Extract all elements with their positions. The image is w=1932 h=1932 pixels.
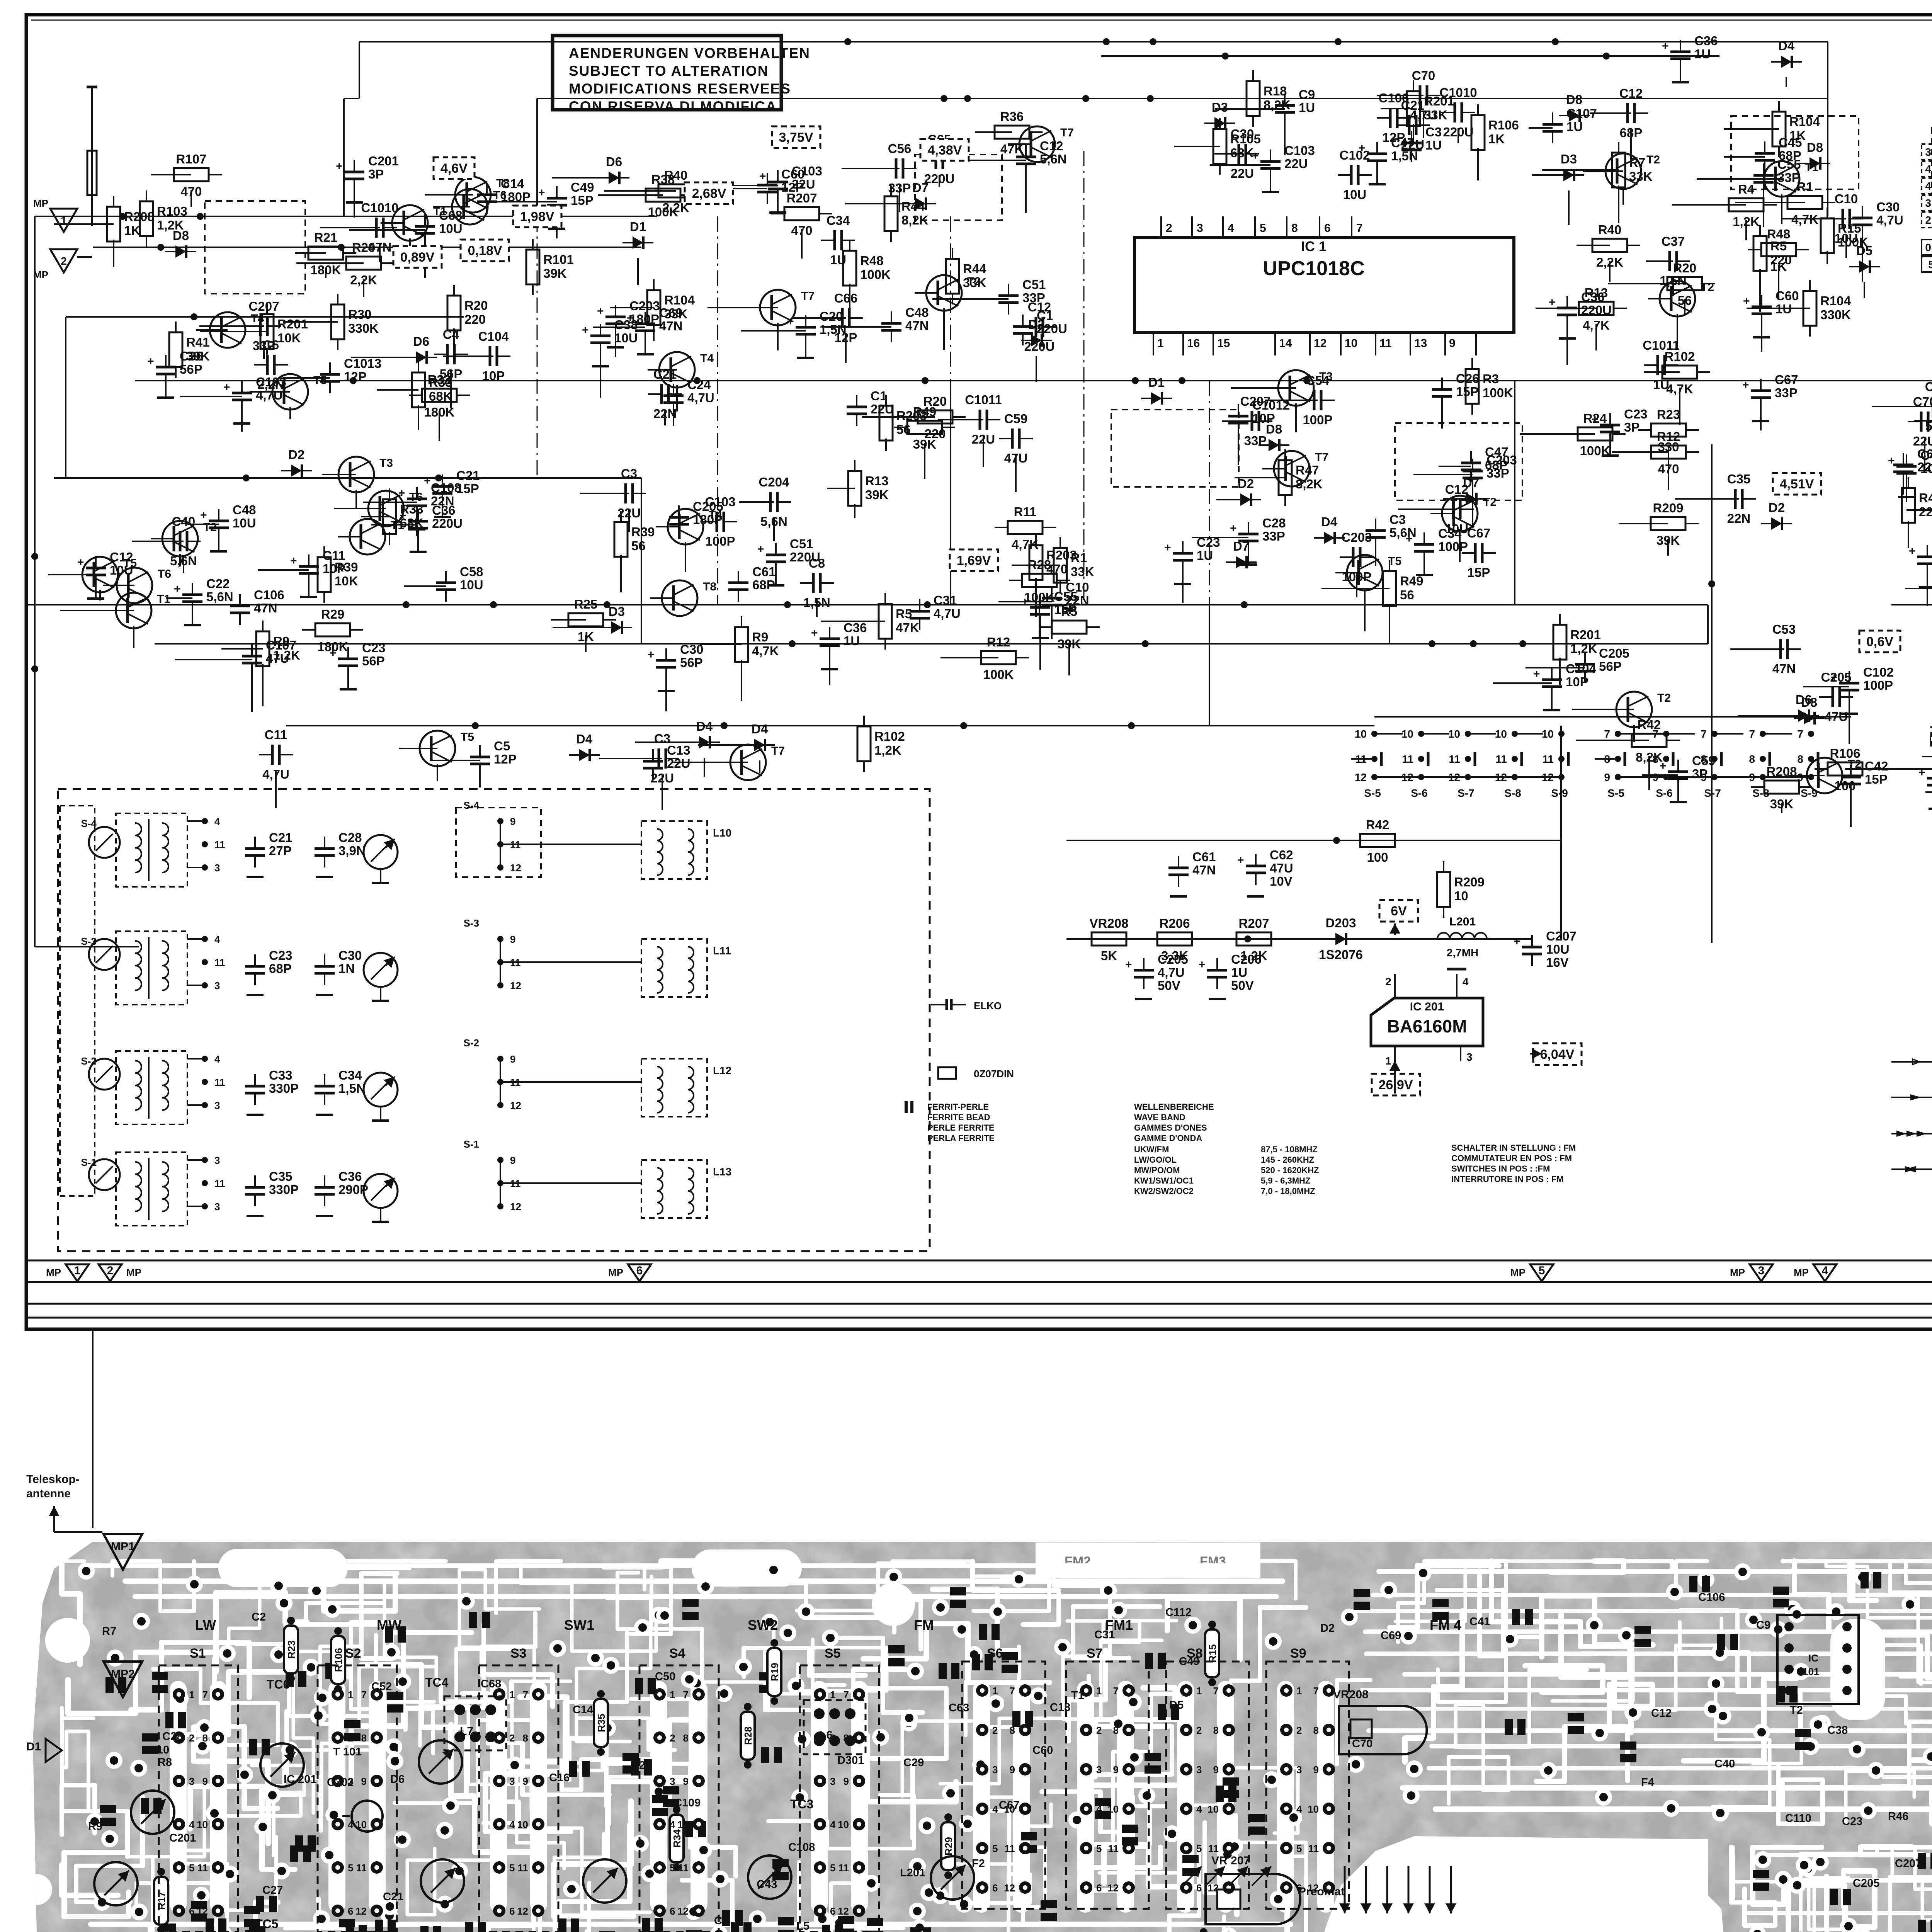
- svg-text:C8: C8: [809, 556, 825, 570]
- svg-text:+: +: [200, 509, 207, 522]
- svg-text:R46: R46: [1888, 1810, 1908, 1823]
- svg-text:FM 4: FM 4: [1430, 1617, 1461, 1633]
- svg-text:C21: C21: [383, 1891, 403, 1903]
- svg-text:1: 1: [189, 1689, 194, 1701]
- svg-text:4,7K: 4,7K: [1791, 212, 1818, 226]
- svg-text:11: 11: [838, 1862, 849, 1874]
- svg-text:L10: L10: [713, 827, 731, 839]
- svg-text:1,69V: 1,69V: [957, 553, 991, 568]
- svg-text:R105: R105: [1230, 132, 1261, 146]
- svg-text:R102: R102: [874, 729, 905, 743]
- svg-text:7: 7: [1010, 1685, 1015, 1697]
- svg-text:R42: R42: [1638, 718, 1661, 732]
- svg-text:7,0 - 18,0MHZ: 7,0 - 18,0MHZ: [1261, 1186, 1315, 1196]
- svg-text:1U: 1U: [1299, 100, 1315, 115]
- svg-text:C69: C69: [1381, 1629, 1401, 1642]
- svg-text:220: 220: [464, 312, 486, 327]
- svg-text:180P: 180P: [693, 512, 723, 527]
- svg-text:T5: T5: [461, 731, 474, 743]
- svg-text:1U: 1U: [1231, 965, 1247, 980]
- svg-text:D6: D6: [390, 1773, 405, 1786]
- svg-text:MP: MP: [46, 1267, 61, 1278]
- svg-text:12: 12: [510, 1201, 521, 1213]
- svg-text:T1: T1: [1805, 161, 1818, 174]
- svg-text:C16: C16: [549, 1772, 570, 1784]
- svg-text:2: 2: [670, 1732, 675, 1744]
- svg-text:+: +: [1230, 522, 1237, 535]
- svg-text:MP2: MP2: [111, 1668, 135, 1680]
- svg-text:100P: 100P: [1863, 678, 1893, 692]
- svg-text:C6: C6: [714, 1915, 728, 1927]
- svg-text:10U: 10U: [614, 331, 638, 345]
- svg-text:1U: 1U: [1653, 378, 1669, 392]
- svg-text:8: 8: [683, 1732, 689, 1744]
- svg-text:10K: 10K: [335, 574, 358, 588]
- svg-text:C106: C106: [254, 588, 284, 602]
- svg-text:+: +: [1918, 766, 1925, 779]
- svg-text:C1012: C1012: [1252, 398, 1290, 412]
- svg-text:T5: T5: [123, 557, 137, 570]
- svg-text:C108: C108: [788, 1841, 815, 1854]
- svg-text:33P: 33P: [1486, 466, 1509, 480]
- svg-text:10: 10: [1495, 728, 1507, 740]
- svg-text:C1011: C1011: [965, 393, 1002, 407]
- svg-text:F4: F4: [1641, 1776, 1654, 1789]
- svg-text:T7: T7: [1060, 126, 1074, 139]
- svg-text:0,18V: 0,18V: [468, 243, 502, 258]
- svg-text:520 - 1620KHZ: 520 - 1620KHZ: [1261, 1165, 1319, 1175]
- svg-text:9: 9: [1449, 337, 1456, 350]
- svg-text:3: 3: [214, 980, 220, 992]
- svg-text:R207: R207: [1239, 916, 1269, 930]
- svg-text:C45: C45: [1779, 135, 1802, 150]
- svg-text:S-7: S-7: [1458, 787, 1475, 799]
- svg-text:330K: 330K: [348, 321, 379, 335]
- svg-text:12: 12: [510, 862, 521, 874]
- svg-text:C62: C62: [1270, 848, 1293, 862]
- svg-text:L2: L2: [632, 1759, 645, 1772]
- svg-text:C27: C27: [262, 1884, 283, 1896]
- svg-text:56P: 56P: [1599, 659, 1622, 673]
- svg-text:C42: C42: [1865, 759, 1888, 773]
- svg-text:4: 4: [1822, 1264, 1828, 1277]
- svg-text:C36: C36: [338, 1169, 362, 1184]
- svg-text:7: 7: [1356, 222, 1363, 235]
- svg-text:1U: 1U: [830, 253, 846, 267]
- svg-text:C67: C67: [999, 1799, 1019, 1811]
- svg-text:4: 4: [214, 934, 220, 945]
- svg-text:C205: C205: [1853, 1877, 1879, 1889]
- svg-text:3,59V: 3,59V: [1925, 197, 1932, 209]
- svg-text:8: 8: [1313, 1725, 1319, 1736]
- svg-text:15P: 15P: [1456, 384, 1479, 399]
- svg-text:T5: T5: [1388, 555, 1401, 568]
- svg-text:6: 6: [509, 1905, 515, 1917]
- svg-text:C66: C66: [834, 291, 858, 305]
- svg-text:56P: 56P: [680, 655, 703, 670]
- svg-text:+: +: [174, 583, 181, 595]
- svg-text:D3: D3: [1212, 100, 1228, 114]
- svg-text:TC6: TC6: [267, 1677, 290, 1691]
- svg-text:C40: C40: [172, 514, 196, 529]
- svg-text:4,32V: 4,32V: [1925, 163, 1932, 175]
- svg-text:C203: C203: [1486, 453, 1517, 467]
- svg-text:11: 11: [214, 1077, 225, 1088]
- svg-text:C10: C10: [149, 1744, 169, 1756]
- svg-text:1: 1: [1385, 1055, 1391, 1067]
- svg-text:+: +: [582, 324, 589, 337]
- svg-text:15P: 15P: [1054, 602, 1077, 617]
- svg-text:R104: R104: [1789, 114, 1820, 129]
- svg-text:4,6V: 4,6V: [440, 161, 468, 176]
- svg-text:R48: R48: [860, 253, 884, 268]
- svg-text:R8: R8: [158, 1756, 172, 1769]
- svg-text:C28: C28: [338, 830, 362, 845]
- svg-text:R209: R209: [1454, 875, 1485, 889]
- svg-text:5: 5: [1096, 1843, 1102, 1854]
- svg-text:LW/GO/OL: LW/GO/OL: [1134, 1155, 1177, 1165]
- svg-text:100P: 100P: [705, 534, 735, 548]
- svg-text:1: 1: [992, 1685, 998, 1697]
- svg-text:R15: R15: [1207, 1644, 1218, 1663]
- svg-text:D8: D8: [1566, 92, 1582, 107]
- svg-text:4,7U: 4,7U: [1158, 965, 1185, 980]
- svg-text:C207: C207: [1546, 929, 1577, 943]
- svg-text:TC5: TC5: [255, 1917, 278, 1931]
- svg-text:C10: C10: [1835, 192, 1858, 206]
- svg-text:C36: C36: [1694, 34, 1718, 48]
- svg-text:330P: 330P: [269, 1081, 299, 1095]
- svg-text:R106: R106: [333, 1648, 344, 1672]
- svg-text:9: 9: [361, 1776, 367, 1787]
- svg-text:3: 3: [509, 1776, 515, 1787]
- svg-text:C31: C31: [1094, 1629, 1115, 1641]
- svg-text:8: 8: [1749, 753, 1755, 765]
- svg-text:5,9 - 6,3MHZ: 5,9 - 6,3MHZ: [1261, 1176, 1310, 1185]
- svg-text:D4: D4: [1321, 515, 1338, 529]
- svg-text:R13: R13: [1585, 286, 1608, 300]
- svg-text:D8: D8: [173, 228, 189, 243]
- svg-text:T6: T6: [158, 568, 171, 580]
- svg-text:3: 3: [992, 1764, 998, 1776]
- svg-text:C205: C205: [1158, 952, 1188, 966]
- svg-text:10K: 10K: [277, 331, 301, 345]
- svg-text:10U: 10U: [439, 221, 463, 236]
- svg-text:1: 1: [1296, 1685, 1302, 1697]
- svg-text:R32: R32: [428, 372, 451, 387]
- svg-text:C20: C20: [820, 309, 843, 323]
- svg-text:C2: C2: [252, 1611, 266, 1623]
- svg-text:56P: 56P: [1925, 419, 1932, 433]
- svg-text:5: 5: [830, 1862, 835, 1874]
- svg-text:L5: L5: [796, 1920, 810, 1932]
- svg-text:1,2K: 1,2K: [874, 743, 901, 757]
- svg-text:5: 5: [670, 1862, 675, 1874]
- svg-text:C14: C14: [573, 1704, 593, 1716]
- svg-text:C109: C109: [674, 1797, 701, 1809]
- svg-text:R19: R19: [769, 1663, 781, 1681]
- svg-text:11: 11: [1449, 753, 1460, 765]
- svg-text:C34: C34: [827, 213, 850, 228]
- svg-text:R44: R44: [901, 199, 925, 213]
- svg-text:R9: R9: [273, 634, 289, 648]
- svg-text:10: 10: [1355, 728, 1367, 740]
- svg-text:39K: 39K: [865, 488, 889, 502]
- svg-text:9: 9: [510, 934, 515, 945]
- svg-text:1K: 1K: [124, 223, 140, 238]
- svg-text:22U: 22U: [1284, 156, 1308, 171]
- svg-text:T1: T1: [1071, 1689, 1084, 1702]
- svg-text:12: 12: [1314, 337, 1327, 350]
- svg-text:7: 7: [1797, 728, 1803, 740]
- svg-text:C37: C37: [1662, 234, 1685, 248]
- svg-text:4: 4: [992, 1803, 998, 1815]
- svg-text:2: 2: [1096, 1725, 1102, 1736]
- svg-text:15P: 15P: [571, 193, 594, 207]
- svg-text:S-6: S-6: [1656, 787, 1673, 799]
- svg-text:100K: 100K: [648, 205, 679, 219]
- svg-text:2: 2: [1196, 1725, 1202, 1736]
- svg-text:47N: 47N: [1192, 863, 1216, 877]
- svg-text:R7: R7: [1629, 155, 1645, 170]
- svg-text:3: 3: [1196, 1764, 1202, 1776]
- svg-text:5,1V: 5,1V: [1928, 259, 1932, 270]
- svg-text:+: +: [1125, 958, 1132, 971]
- svg-text:220: 220: [1770, 253, 1792, 267]
- svg-text:2: 2: [509, 1732, 515, 1744]
- svg-text:C67: C67: [1467, 526, 1491, 540]
- svg-text:3,75V: 3,75V: [779, 130, 813, 145]
- svg-text:10P: 10P: [482, 369, 505, 383]
- svg-text:5: 5: [509, 1862, 515, 1874]
- svg-text:IC 201: IC 201: [284, 1773, 316, 1786]
- svg-text:2: 2: [1166, 222, 1172, 235]
- svg-text:3: 3: [1197, 222, 1203, 235]
- svg-text:IC 201: IC 201: [1410, 1000, 1444, 1013]
- svg-text:R13: R13: [865, 474, 889, 488]
- svg-text:R203: R203: [896, 408, 927, 423]
- svg-text:MP: MP: [126, 1267, 141, 1278]
- svg-text:7: 7: [844, 1689, 849, 1701]
- svg-text:C5: C5: [494, 739, 510, 753]
- svg-text:47U: 47U: [1825, 709, 1848, 724]
- svg-text:10: 10: [1542, 728, 1554, 740]
- svg-text:22U: 22U: [1917, 460, 1932, 474]
- svg-text:5: 5: [992, 1843, 998, 1854]
- svg-text:C12: C12: [1040, 139, 1063, 153]
- svg-text:C48: C48: [233, 503, 256, 517]
- svg-text:3: 3: [214, 862, 220, 874]
- svg-text:3: 3: [214, 1155, 220, 1166]
- svg-text:IC: IC: [1808, 1652, 1818, 1664]
- svg-text:9: 9: [510, 1053, 515, 1065]
- svg-text:1: 1: [670, 1689, 675, 1701]
- svg-text:C23: C23: [1842, 1815, 1862, 1828]
- svg-text:C106: C106: [1379, 91, 1409, 105]
- svg-text:R21: R21: [314, 230, 338, 245]
- svg-text:100P: 100P: [1303, 413, 1332, 427]
- svg-text:3P: 3P: [1624, 420, 1639, 434]
- svg-text:9: 9: [683, 1776, 689, 1787]
- svg-text:C108: C108: [431, 481, 461, 495]
- svg-text:T8: T8: [496, 177, 510, 190]
- svg-text:R38: R38: [651, 172, 675, 187]
- svg-text:330K: 330K: [1820, 308, 1851, 322]
- svg-text:D4: D4: [576, 732, 593, 746]
- svg-text:2: 2: [992, 1725, 998, 1736]
- svg-text:R15: R15: [1838, 221, 1861, 235]
- svg-text:C206: C206: [1231, 952, 1262, 966]
- svg-text:C3: C3: [1425, 125, 1442, 139]
- svg-text:MP: MP: [33, 197, 48, 209]
- svg-text:0,72V: 0,72V: [1925, 241, 1932, 253]
- svg-text:C205: C205: [693, 499, 723, 514]
- svg-text:C1011: C1011: [1643, 338, 1679, 352]
- svg-text:MP: MP: [33, 269, 48, 281]
- svg-text:C67: C67: [1917, 447, 1932, 461]
- svg-text:15P: 15P: [1468, 565, 1490, 580]
- svg-text:8: 8: [1010, 1725, 1015, 1736]
- svg-text:R29: R29: [321, 607, 345, 621]
- svg-text:1: 1: [509, 1689, 515, 1701]
- svg-text:C205: C205: [1821, 670, 1852, 684]
- svg-text:R20: R20: [464, 298, 488, 313]
- svg-text:12P: 12P: [344, 369, 367, 384]
- svg-text:+: +: [290, 554, 297, 567]
- svg-text:MP: MP: [1730, 1267, 1745, 1278]
- svg-text:R34: R34: [671, 1829, 683, 1848]
- svg-text:4,38V: 4,38V: [928, 143, 962, 158]
- svg-text:C201: C201: [368, 154, 399, 168]
- svg-text:4,7K: 4,7K: [1012, 537, 1039, 551]
- svg-text:T5: T5: [313, 374, 327, 387]
- svg-text:UPC1018C: UPC1018C: [1263, 257, 1364, 280]
- svg-text:MW: MW: [377, 1617, 401, 1633]
- svg-text:12: 12: [517, 1905, 528, 1917]
- svg-text:C1010: C1010: [361, 201, 398, 215]
- svg-text:4,51V: 4,51V: [1780, 477, 1814, 492]
- svg-text:C52: C52: [371, 1680, 392, 1693]
- svg-text:8: 8: [361, 1732, 367, 1744]
- svg-text:T2: T2: [1483, 496, 1497, 509]
- svg-text:C49: C49: [1179, 1655, 1199, 1668]
- svg-text:SW1: SW1: [564, 1617, 594, 1633]
- svg-text:C1013: C1013: [344, 356, 381, 371]
- svg-text:COMMUTATEUR EN POS : FM: COMMUTATEUR EN POS : FM: [1451, 1153, 1572, 1163]
- svg-text:C23: C23: [362, 641, 386, 655]
- svg-text:C36: C36: [180, 349, 203, 363]
- svg-text:100K: 100K: [983, 667, 1014, 682]
- svg-text:C48: C48: [905, 305, 929, 320]
- svg-text:68K: 68K: [1230, 146, 1254, 160]
- svg-text:VR208: VR208: [1333, 1688, 1369, 1701]
- svg-text:11: 11: [214, 1178, 225, 1189]
- svg-text:GAMME D'ONDA: GAMME D'ONDA: [1134, 1133, 1202, 1143]
- svg-text:C204: C204: [759, 475, 790, 489]
- svg-text:1U: 1U: [844, 634, 860, 648]
- svg-text:6: 6: [189, 1905, 194, 1917]
- svg-text:C47: C47: [1391, 136, 1415, 150]
- svg-text:+: +: [1514, 935, 1520, 948]
- svg-text:R201: R201: [277, 317, 308, 331]
- svg-text:T4: T4: [700, 352, 714, 365]
- svg-text:+: +: [757, 543, 764, 556]
- svg-text:2: 2: [348, 1732, 353, 1744]
- svg-text:D8: D8: [1807, 140, 1823, 155]
- svg-text:4: 4: [1096, 1803, 1102, 1815]
- svg-text:12: 12: [355, 1905, 367, 1917]
- svg-text:12: 12: [838, 1905, 849, 1917]
- svg-text:KW2/SW2/OC2: KW2/SW2/OC2: [1134, 1186, 1194, 1196]
- svg-text:R9: R9: [88, 1820, 102, 1833]
- svg-text:5: 5: [1539, 1264, 1545, 1277]
- svg-text:3P: 3P: [1692, 767, 1708, 781]
- svg-text:100P: 100P: [1438, 539, 1468, 554]
- svg-text:C49: C49: [571, 180, 594, 194]
- svg-text:D4: D4: [752, 722, 768, 736]
- svg-text:D3: D3: [1561, 152, 1577, 166]
- svg-text:R25: R25: [574, 597, 598, 611]
- svg-text:100: 100: [1367, 850, 1388, 864]
- svg-text:1: 1: [348, 1689, 353, 1701]
- svg-text:3: 3: [830, 1776, 835, 1787]
- svg-text:12: 12: [677, 1905, 689, 1917]
- svg-text:10: 10: [1448, 728, 1460, 740]
- svg-text:C102: C102: [1863, 665, 1894, 679]
- svg-text:C205: C205: [1599, 646, 1629, 660]
- svg-text:+: +: [1909, 545, 1916, 558]
- svg-text:R104: R104: [664, 293, 695, 307]
- svg-text:C68: C68: [481, 1678, 501, 1690]
- svg-text:C1010: C1010: [1439, 85, 1477, 100]
- svg-text:C18: C18: [1050, 1701, 1070, 1714]
- svg-text:S-3: S-3: [464, 917, 479, 929]
- svg-text:12: 12: [510, 980, 521, 992]
- svg-text:22U: 22U: [1231, 166, 1254, 180]
- svg-text:C43: C43: [757, 1878, 777, 1891]
- svg-text:10U: 10U: [233, 516, 256, 530]
- svg-text:D2: D2: [288, 447, 304, 462]
- svg-text:1U: 1U: [1566, 119, 1583, 134]
- svg-text:4: 4: [670, 1819, 675, 1830]
- svg-text:S7: S7: [1087, 1646, 1103, 1661]
- svg-text:1: 1: [1196, 1685, 1202, 1697]
- svg-text:12: 12: [1355, 771, 1367, 783]
- svg-text:R5: R5: [896, 607, 912, 621]
- svg-text:TC3: TC3: [790, 1797, 813, 1811]
- svg-text:4,7U: 4,7U: [934, 606, 961, 621]
- svg-text:T7: T7: [1315, 451, 1328, 464]
- svg-text:antenne: antenne: [26, 1487, 71, 1500]
- svg-text:R29: R29: [943, 1837, 954, 1855]
- svg-text:D6: D6: [606, 155, 622, 169]
- svg-text:1U: 1U: [1197, 548, 1213, 563]
- svg-text:+: +: [223, 381, 230, 394]
- svg-text:3,9N: 3,9N: [338, 844, 366, 858]
- svg-text:+: +: [759, 170, 766, 183]
- svg-text:MP1: MP1: [111, 1540, 135, 1553]
- svg-text:R1: R1: [1797, 180, 1813, 194]
- svg-text:4: 4: [830, 1819, 836, 1830]
- svg-text:11: 11: [197, 1862, 208, 1874]
- svg-text:4,7K: 4,7K: [752, 644, 779, 658]
- svg-text:9: 9: [1010, 1764, 1015, 1776]
- svg-text:C38: C38: [1827, 1724, 1848, 1736]
- svg-text:C3: C3: [1389, 512, 1406, 527]
- svg-text:T1: T1: [157, 593, 170, 605]
- svg-text:7: 7: [361, 1689, 367, 1701]
- svg-text:C112: C112: [1165, 1606, 1192, 1619]
